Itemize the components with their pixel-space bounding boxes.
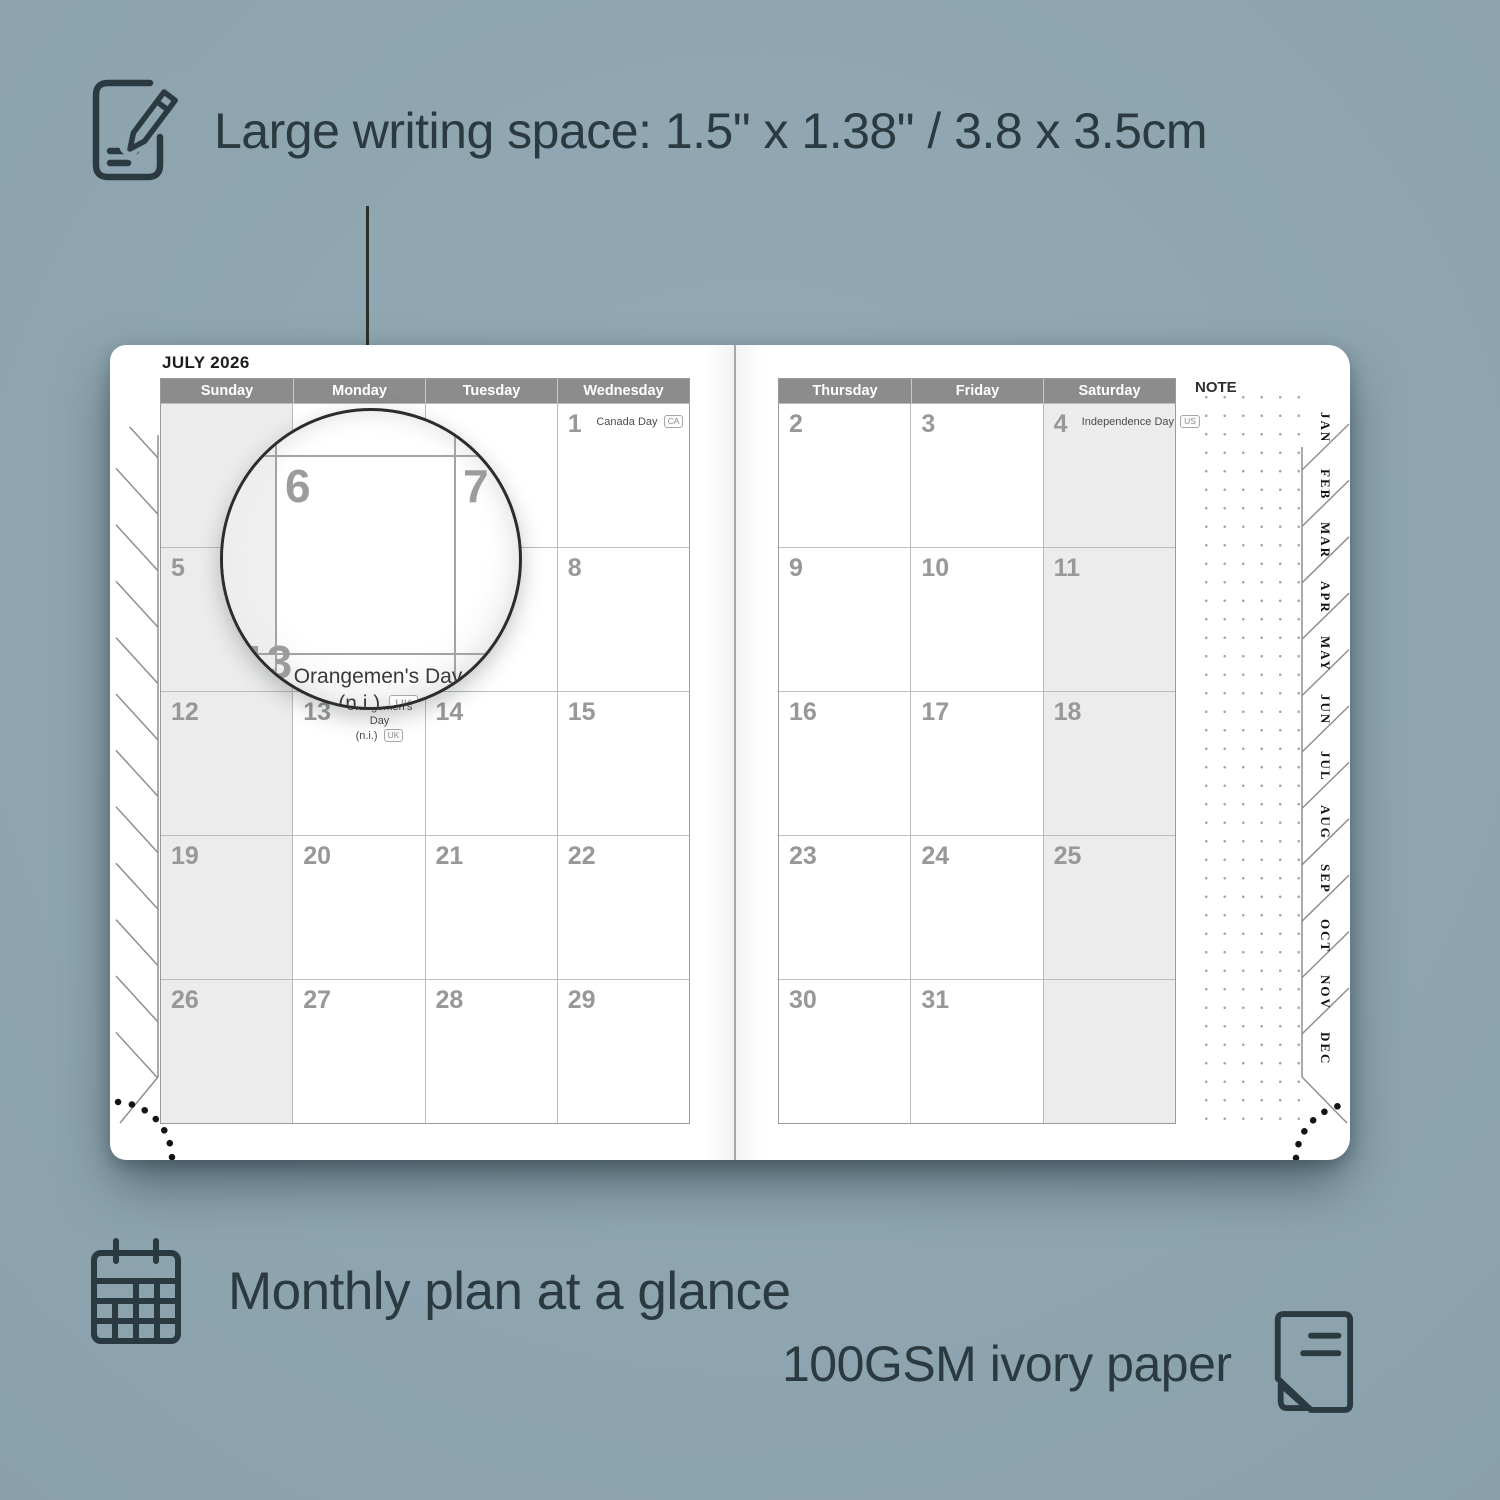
day-number: 16 — [789, 698, 817, 727]
day-number: 23 — [789, 842, 817, 871]
calendar-cell: 19 — [161, 836, 292, 979]
calendar-cell: 1Canada Day CA — [558, 404, 689, 547]
calendar-cell: 12 — [161, 692, 292, 835]
magnified-holiday-line1: Orangemen's Day — [294, 665, 463, 688]
notepad-pencil-icon — [84, 72, 188, 190]
calendar-cell: 13Orangemen's Day (n.i.) UK — [293, 692, 424, 835]
day-number: 22 — [568, 842, 596, 871]
month-tab-nov: NOV — [1307, 964, 1343, 1020]
month-tab-apr: APR — [1307, 569, 1343, 625]
magnified-holiday-label: Orangemen's Day (n.i.) UK — [263, 663, 493, 710]
month-tab-feb: FEB — [1307, 456, 1343, 512]
day-header-thursday: Thursday — [779, 379, 911, 403]
writing-space-label: Large writing space: 1.5" x 1.38" / 3.8 … — [214, 102, 1207, 160]
writing-space-callout: Large writing space: 1.5" x 1.38" / 3.8 … — [84, 72, 1207, 190]
day-number: 12 — [171, 698, 199, 727]
calendar-cell: 4Independence Day US — [1044, 404, 1175, 547]
day-number: 19 — [171, 842, 199, 871]
day-header-tuesday: Tuesday — [425, 379, 557, 403]
calendar-cell: 23 — [779, 836, 910, 979]
calendar-cell: 15 — [558, 692, 689, 835]
calendar-cell: 27 — [293, 980, 424, 1123]
spine-gutter — [734, 345, 736, 1160]
day-number: 26 — [171, 986, 199, 1015]
calendar-cell: 11 — [1044, 548, 1175, 691]
day-number: 1 — [568, 410, 582, 439]
month-tab-mar: MAR — [1307, 513, 1343, 569]
month-tab-jan: JAN — [1307, 400, 1343, 456]
paper-callout: 100GSM ivory paper — [782, 1306, 1356, 1422]
day-number: 25 — [1054, 842, 1082, 871]
day-header-friday: Friday — [911, 379, 1043, 403]
note-dot-grid — [1192, 381, 1314, 1125]
month-tab-dec: DEC — [1307, 1020, 1343, 1076]
day-header-sunday: Sunday — [161, 379, 293, 403]
calendar-cell: 10 — [911, 548, 1042, 691]
magnified-grid-line — [223, 455, 519, 457]
month-tab-sep: SEP — [1307, 851, 1343, 907]
calendar-grid-right: ThursdayFridaySaturday234Independence Da… — [778, 378, 1176, 1124]
holiday-label: Independence Day US — [1082, 415, 1170, 428]
left-edge-tab-hatching — [114, 427, 162, 1131]
month-tab-oct: OCT — [1307, 908, 1343, 964]
day-header-wednesday: Wednesday — [557, 379, 689, 403]
country-badge: CA — [664, 415, 684, 428]
calendar-cell: 14 — [426, 692, 557, 835]
calendar-cell: 18 — [1044, 692, 1175, 835]
month-tab-may: MAY — [1307, 626, 1343, 682]
calendar-cell: 21 — [426, 836, 557, 979]
magnified-day-number: 7 — [463, 459, 489, 513]
day-number: 31 — [921, 986, 949, 1015]
magnifier-circle: 6 7 13 Orangemen's Day (n.i.) UK — [220, 408, 522, 710]
day-number: 30 — [789, 986, 817, 1015]
day-number: 24 — [921, 842, 949, 871]
calendar-cell: 9 — [779, 548, 910, 691]
month-tab-jun: JUN — [1307, 682, 1343, 738]
country-badge: UK — [384, 729, 404, 742]
day-header-monday: Monday — [293, 379, 425, 403]
calendar-cell: 17 — [911, 692, 1042, 835]
day-number: 10 — [921, 554, 949, 583]
holiday-label: Canada Day CA — [596, 415, 684, 428]
monthly-plan-label: Monthly plan at a glance — [228, 1261, 791, 1322]
month-tab-aug: AUG — [1307, 795, 1343, 851]
calendar-cell — [1044, 980, 1175, 1123]
day-number: 9 — [789, 554, 803, 583]
calendar-cell: 22 — [558, 836, 689, 979]
day-number: 2 — [789, 410, 803, 439]
magnified-day-number: 6 — [285, 459, 311, 513]
day-number: 18 — [1054, 698, 1082, 727]
calendar-cell: 28 — [426, 980, 557, 1123]
paper-sheet-icon — [1266, 1306, 1356, 1422]
calendar-cell: 31 — [911, 980, 1042, 1123]
calendar-cell: 24 — [911, 836, 1042, 979]
day-number: 8 — [568, 554, 582, 583]
magnified-holiday-line2: (n.i.) — [338, 692, 380, 710]
calendar-cell: 29 — [558, 980, 689, 1123]
day-number: 29 — [568, 986, 596, 1015]
calendar-cell: 2 — [779, 404, 910, 547]
calendar-cell: 25 — [1044, 836, 1175, 979]
day-number: 4 — [1054, 410, 1068, 439]
day-number: 27 — [303, 986, 331, 1015]
day-number: 20 — [303, 842, 331, 871]
calendar-grid-icon — [84, 1232, 188, 1350]
note-label: NOTE — [1195, 379, 1242, 396]
day-number: 28 — [436, 986, 464, 1015]
calendar-cell: 16 — [779, 692, 910, 835]
calendar-cell: 30 — [779, 980, 910, 1123]
day-number: 17 — [921, 698, 949, 727]
day-number: 5 — [171, 554, 185, 583]
day-number: 21 — [436, 842, 464, 871]
calendar-cell: 20 — [293, 836, 424, 979]
day-number: 11 — [1054, 554, 1080, 583]
month-title: JULY 2026 — [162, 353, 250, 373]
product-image: Large writing space: 1.5" x 1.38" / 3.8 … — [0, 0, 1500, 1500]
paper-label: 100GSM ivory paper — [782, 1335, 1232, 1393]
month-tab-jul: JUL — [1307, 738, 1343, 794]
calendar-cell: 26 — [161, 980, 292, 1123]
day-number: 15 — [568, 698, 596, 727]
monthly-plan-callout: Monthly plan at a glance — [84, 1232, 791, 1350]
day-number: 3 — [921, 410, 935, 439]
calendar-cell: 8 — [558, 548, 689, 691]
calendar-cell: 3 — [911, 404, 1042, 547]
day-header-saturday: Saturday — [1043, 379, 1175, 403]
